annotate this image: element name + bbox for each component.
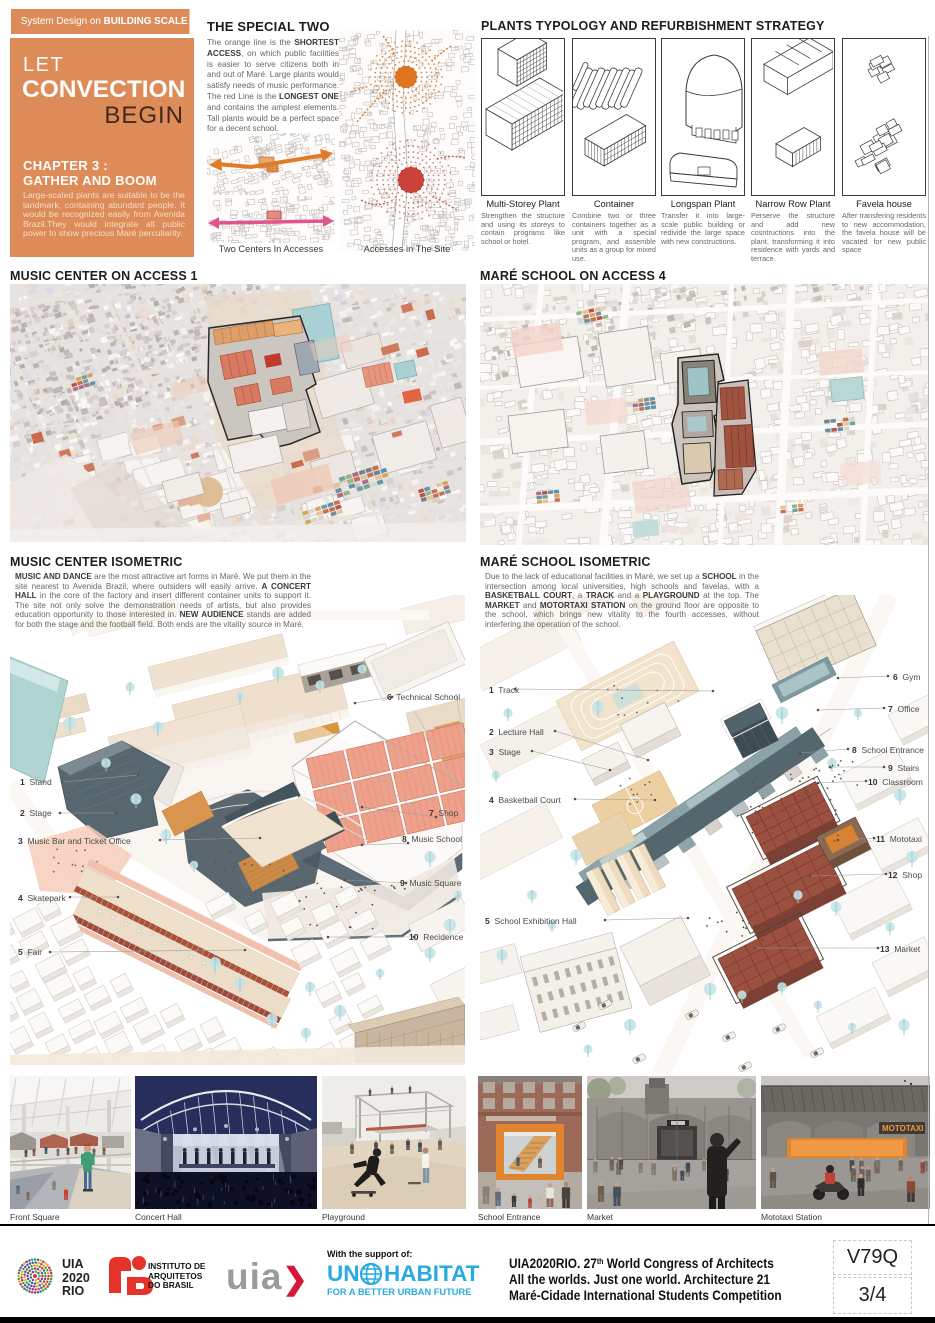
svg-text:MOTOTAXI: MOTOTAXI: [882, 1124, 923, 1133]
